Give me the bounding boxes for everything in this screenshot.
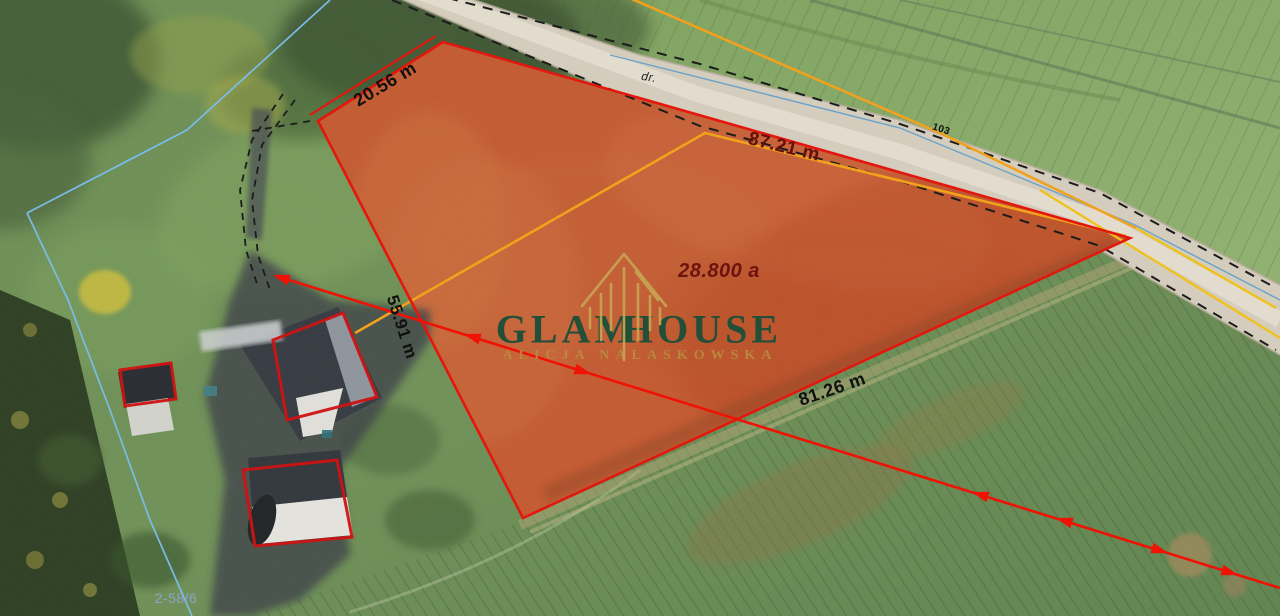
area-label: 28.800 a [678,261,760,281]
house-icon [578,244,670,362]
plot-reference: 2-58/6 [155,591,198,605]
road-label: dr. [641,70,658,84]
aerial-map: 20.56 m 87.21 m 55.91 m 81.26 m 28.800 a… [0,0,1280,616]
